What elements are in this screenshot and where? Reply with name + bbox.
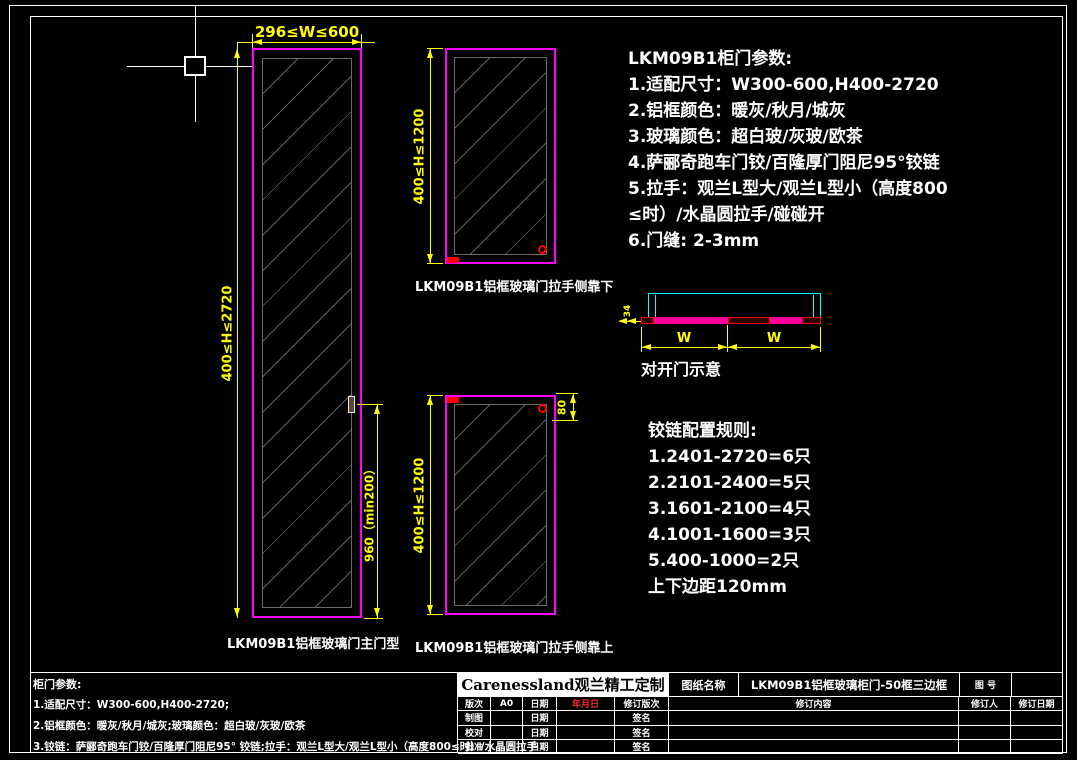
main-door-handle-dim: 960（min200） [361,448,378,578]
hinge-line: 2.2101-2400=5只 [648,470,811,496]
title-block-grid: 版次 A0 日期 年月日 修订版次 修订内容 修订人 修订日期 制图 日期 签名… [458,697,1063,754]
spec-line: 4.萨郦奇跑车门铰/百隆厚门阻尼95°铰链 [628,150,948,176]
spec-line: ≤时）/水晶圆拉手/碰碰开 [628,202,948,228]
main-door-glass [262,58,352,608]
drawing-no-value [1012,673,1063,697]
sign-row-date-label: 日期 [523,740,557,754]
section-thickness-dim: 34 [623,299,633,323]
handle-bottom-height-dim: 400≤H≤1200 [413,92,428,222]
section-stile-middle [728,317,770,324]
sign-row-date-label: 日期 [523,711,557,725]
spec-line: 5.拉手：观兰L型大/观兰L型小（高度800 [628,176,948,202]
section-cabinet-top [648,293,821,294]
sign-row-date [557,740,615,754]
main-door-width-dim: 296≤W≤600 [237,23,377,41]
sign-row-sign-label: 签名 [615,726,669,740]
company-logo: Carenessland观兰精工定制 [458,673,669,697]
section-stile-right [802,317,821,324]
drawing-no-label: 图 号 [960,673,1012,697]
sign-row-content [669,740,959,754]
sign-row-revdate [1011,740,1063,754]
dim-arrow [570,394,576,403]
section-caption: 对开门示意 [641,356,751,380]
dim-arrow [570,411,576,420]
spec-line: 2.铝框颜色：暖灰/秋月/城灰 [628,98,948,124]
handle-top-offset-dim: 80 [556,393,569,423]
drawing-name: LKM09B1铝框玻璃柜门-50框三边框 [739,673,960,697]
handle-bottom-hinge-mark [447,257,459,263]
dim-arrow [718,344,727,350]
handle-bottom-door-label: LKM09B1铝框玻璃门拉手侧靠下 [415,276,585,295]
rev-label: 版次 [458,697,491,711]
sign-row-sign-label: 签名 [615,711,669,725]
main-door-height-dim: 400≤H≤2720 [221,264,236,404]
dim-arrow [427,49,433,58]
sign-row-revisor [959,711,1011,725]
dim-arrow [811,344,820,350]
sign-row-date [557,711,615,725]
handle-bottom-ext-bot [427,263,443,264]
dim-arrow [234,49,240,58]
handle-bottom-height-dim-line [430,48,431,264]
main-door-height-dim-line [237,42,238,618]
sign-row-revdate [1011,726,1063,740]
section-cabinet-right1 [813,295,814,317]
date-value: 年月日 [557,697,615,711]
drawing-name-label: 图纸名称 [669,673,739,697]
section-stile-left [641,317,654,324]
sign-row-revisor [959,726,1011,740]
sign-row-revdate [1011,711,1063,725]
spec-panel: LKM09B1柜门参数: 1.适配尺寸：W300-600,H400-2720 2… [628,46,948,254]
sign-row-label: 制图 [458,711,491,725]
handle-top-handle-icon [538,404,547,413]
section-ext-right [820,327,821,352]
section-right-width-label: W [764,331,784,346]
date-label: 日期 [523,697,557,711]
dim-arrow [374,405,380,414]
dim-arrow [234,608,240,617]
sign-row-revisor [959,740,1011,754]
sign-row-sign-label: 签名 [615,740,669,754]
handle-bottom-door-glass [454,57,547,255]
handle-top-ext-bot [427,614,443,615]
spec-line: 6.门缝: 2-3mm [628,228,948,254]
sign-row-value [491,711,523,725]
section-cabinet-left2 [655,295,656,317]
hinge-line: 5.400-1000=2只 [648,548,811,574]
spec-line: 1.适配尺寸：W300-600,H400-2720 [628,72,948,98]
handle-top-height-dim: 400≤H≤1200 [413,441,428,571]
revisor-label: 修订人 [959,697,1011,711]
rev-value: A0 [491,697,523,711]
hinge-title: 铰链配置规则: [648,418,811,444]
spec-title: LKM09B1柜门参数: [628,46,948,72]
sign-row-date [557,726,615,740]
handle-top-hinge-mark [447,397,459,403]
sign-row-value [491,740,523,754]
dim-arrow [374,608,380,617]
footer-params-line: 1.适配尺寸：W300-600,H400-2720; [33,697,229,712]
dim-arrow [427,254,433,263]
handle-top-height-dim-line [430,395,431,615]
sign-row-content [669,726,959,740]
handle-bottom-handle-icon [538,245,547,254]
hinge-line: 3.1601-2100=4只 [648,496,811,522]
footer-params-title: 柜门参数: [33,676,81,692]
section-left-width-label: W [674,331,694,346]
title-block: Carenessland观兰精工定制 图纸名称 LKM09B1铝框玻璃柜门-50… [457,672,1063,753]
hinge-line: 4.1001-1600=3只 [648,522,811,548]
datum-square [184,56,206,76]
spec-line: 3.玻璃颜色：超白玻/灰玻/欧茶 [628,124,948,150]
rev-no-label: 修订版次 [615,697,669,711]
hinge-line: 1.2401-2720=6只 [648,444,811,470]
hinge-panel: 铰链配置规则: 1.2401-2720=6只 2.2101-2400=5只 3.… [648,418,811,600]
sign-row-date-label: 日期 [523,726,557,740]
dim-arrow [642,344,651,350]
dim-arrow [427,396,433,405]
cad-drawing-canvas: 296≤W≤600 400≤H≤2720 960（min200） LKM09B1… [0,0,1077,760]
rev-date-label: 修订日期 [1011,697,1063,711]
sign-row-label: 校对 [458,726,491,740]
main-door-label: LKM09B1铝框玻璃门主门型 [227,633,397,652]
sign-row-content [669,711,959,725]
section-cabinet-left1 [648,293,649,317]
hinge-line: 上下边距120mm [648,574,811,600]
footer-params-block: 柜门参数: 1.适配尺寸：W300-600,H400-2720; 2.铝框颜色：… [30,672,457,753]
handle-top-door-label: LKM09B1铝框玻璃门拉手侧靠上 [415,637,585,656]
main-door-handle-ext2 [364,618,383,619]
rev-content-label: 修订内容 [669,697,959,711]
footer-params-line: 2.铝框颜色：暖灰/秋月/城灰;玻璃颜色：超白玻/灰玻/欧茶 [33,718,305,733]
sign-row-label: 批准 [458,740,491,754]
sign-row-value [491,726,523,740]
title-block-row1: Carenessland观兰精工定制 图纸名称 LKM09B1铝框玻璃柜门-50… [458,673,1063,697]
main-door-handle [348,396,355,413]
section-cabinet-right2 [820,293,821,317]
dim-arrow [427,605,433,614]
handle-top-door-glass [454,404,547,606]
dim-arrow [728,344,737,350]
